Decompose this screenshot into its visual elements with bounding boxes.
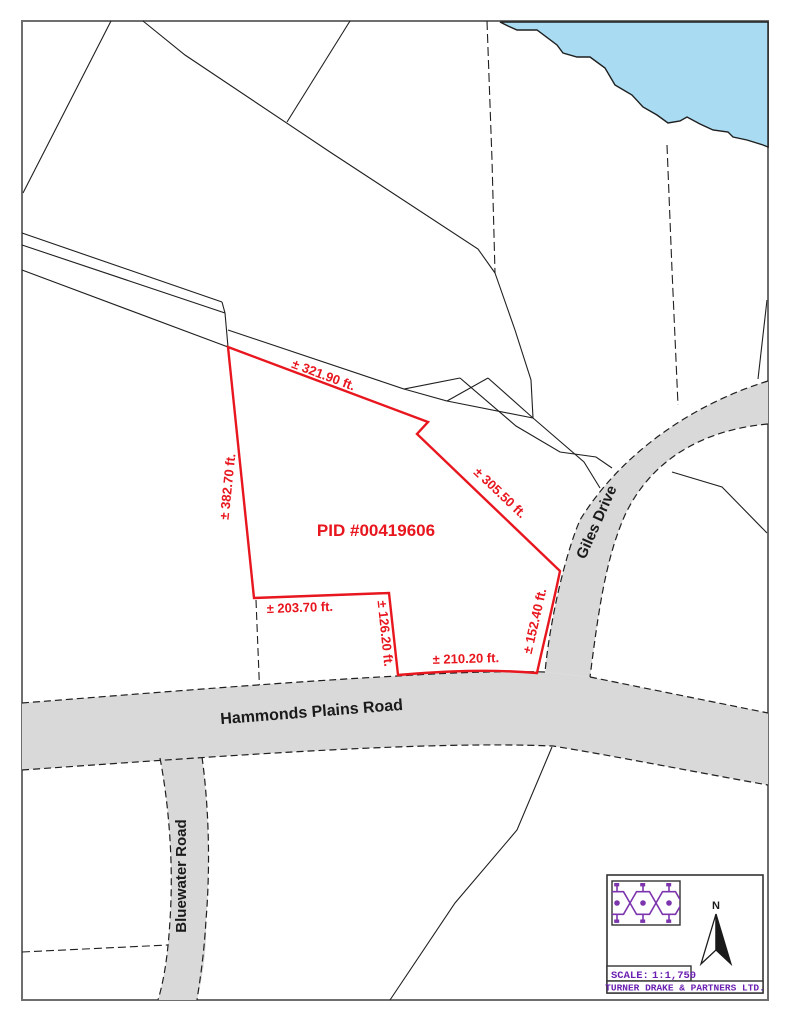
bluewater-road-label: Bluewater Road — [173, 819, 190, 932]
dim-label-southwest: ± 203.70 ft. — [266, 599, 333, 616]
map-border — [22, 21, 768, 1000]
survey-map-canvas: ± 321.90 ft. ± 382.70 ft. ± 305.50 ft. ±… — [0, 0, 791, 1024]
dim-label-south: ± 210.20 ft. — [433, 650, 500, 667]
survey-plan-page: ± 321.90 ft. ± 382.70 ft. ± 305.50 ft. ±… — [0, 0, 791, 1024]
pid-label: PID #00419606 — [317, 521, 435, 540]
scale-value: 1:1,750 — [652, 970, 696, 982]
company-name: TURNER DRAKE & PARTNERS LTD. — [605, 983, 765, 994]
north-arrow-n-label: N — [712, 900, 720, 912]
honeycomb-logo-icon — [604, 881, 682, 925]
legend-box: N SCALE: 1:1,750 TURNER DRAKE & PARTNERS… — [604, 875, 765, 994]
scale-label: SCALE: — [611, 970, 649, 982]
